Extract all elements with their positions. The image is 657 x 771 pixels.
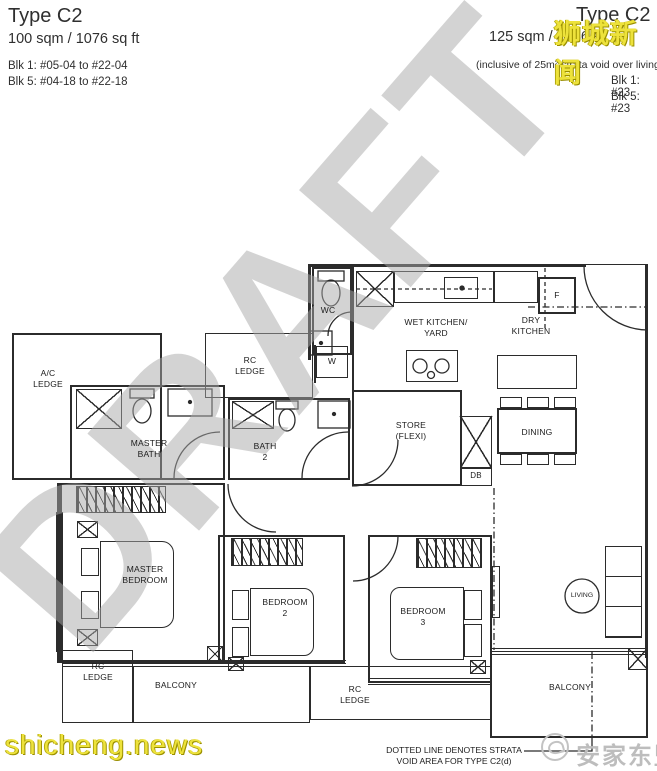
dry-kitchen-counter-top <box>494 271 538 303</box>
dry-kitchen-island <box>497 355 577 389</box>
news-cn-watermark: 狮城新闻 <box>554 12 657 90</box>
room-balcony-left <box>133 666 310 723</box>
label-washer: W <box>316 356 348 367</box>
label-rc-ledge-top: RC LEDGE <box>222 355 278 377</box>
label-bath-2: BATH 2 <box>242 441 288 463</box>
tv-console <box>492 566 500 618</box>
dining-chair <box>500 454 522 465</box>
dining-chair <box>554 454 576 465</box>
label-living: LIVING <box>560 592 604 601</box>
sofa <box>605 546 642 638</box>
label-wc: WC <box>314 305 342 316</box>
dining-chair <box>554 397 576 408</box>
label-balcony-left: BALCONY <box>145 680 207 691</box>
wall-top-entrance <box>584 264 648 265</box>
label-master-bedroom: MASTER BEDROOM <box>110 564 180 586</box>
unit-blk5-left: Blk 5: #04-18 to #22-18 <box>8 76 128 88</box>
fan-coil-icon <box>228 657 244 671</box>
unit-blk5-right: Blk 5: #23 <box>611 91 657 115</box>
label-master-bath: MASTER BATH <box>118 438 180 460</box>
stove-island <box>406 350 458 382</box>
news-site-watermark: shicheng.news <box>5 729 203 761</box>
unit-blk1-left: Blk 1: #05-04 to #22-04 <box>8 60 128 72</box>
bedside-table <box>464 624 482 657</box>
label-db: DB <box>460 471 492 481</box>
strata-void-footnote: DOTTED LINE DENOTES STRATA VOID AREA FOR… <box>381 745 527 766</box>
fan-coil-icon <box>470 660 486 674</box>
label-fridge: F <box>538 290 576 301</box>
label-dry-kitchen: DRY KITCHEN <box>503 315 559 337</box>
column-icon <box>207 646 223 662</box>
window-living-balcony <box>492 648 648 655</box>
label-dining: DINING <box>504 427 570 438</box>
window-bedroom3-bottom <box>368 678 492 685</box>
dining-chair <box>527 454 549 465</box>
bedside-table <box>232 590 249 620</box>
entrance-door-arc <box>584 266 648 330</box>
floorplan-page: Type C2 100 sqm / 1076 sq ft Blk 1: #05-… <box>0 0 657 771</box>
label-ac-ledge: A/C LEDGE <box>20 368 76 390</box>
label-store: STORE (FLEXI) <box>382 420 440 442</box>
column-icon <box>628 648 648 670</box>
bedside-table <box>464 590 482 620</box>
label-rc-ledge-bottom-left: RC LEDGE <box>72 661 124 683</box>
label-balcony-right: BALCONY <box>538 682 602 693</box>
label-bedroom-3: BEDROOM 3 <box>394 606 452 628</box>
shaft-box <box>460 416 492 468</box>
wall-right <box>645 264 648 658</box>
label-wet-kitchen: WET KITCHEN/ YARD <box>393 317 479 339</box>
unit-area-left: 100 sqm / 1076 sq ft <box>8 31 139 47</box>
dining-chair <box>500 397 522 408</box>
label-rc-ledge-bottom-center: RC LEDGE <box>329 684 381 706</box>
label-bedroom-2: BEDROOM 2 <box>256 597 314 619</box>
agency-watermark: 安家东盟 <box>576 736 657 771</box>
bedroom3-wardrobe <box>416 538 482 568</box>
agency-logo-icon <box>541 733 569 761</box>
bedside-table <box>232 627 249 657</box>
unit-type-title-left: Type C2 <box>8 5 82 28</box>
dining-chair <box>527 397 549 408</box>
